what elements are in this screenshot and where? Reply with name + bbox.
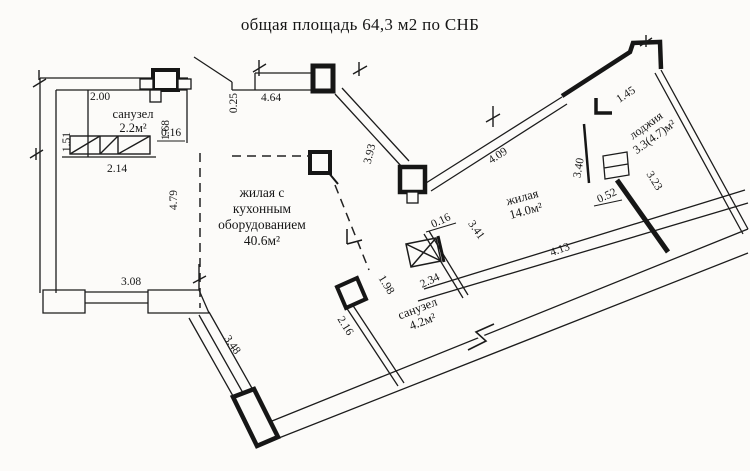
room-name: санузел bbox=[113, 107, 154, 121]
shelf-fixture bbox=[70, 136, 150, 154]
room-name: кухонным bbox=[218, 201, 306, 217]
dim-entry-wall-thickness: 0.25 bbox=[228, 93, 240, 113]
dim-bathroom-top-wall: 0.16 bbox=[161, 127, 181, 139]
dim-top-left-width: 2.00 bbox=[90, 91, 110, 103]
dim-left-upper: 1.51 bbox=[61, 132, 73, 152]
dim-bathroom-top-bottom: 2.14 bbox=[107, 163, 127, 175]
wall-break-symbol bbox=[468, 324, 494, 350]
room-name: оборудованием bbox=[218, 217, 306, 233]
room-label-living-kitchen: жилая с кухонным оборудованием 40.6м² bbox=[218, 185, 306, 249]
dim-bottom-left-wall: 3.08 bbox=[121, 276, 141, 288]
dim-top-wall: 4.64 bbox=[261, 92, 281, 104]
room-area: 2.2м² bbox=[113, 121, 154, 135]
floor-plan-drawing bbox=[0, 0, 750, 471]
plan-title: общая площадь 64,3 м2 по СНБ bbox=[241, 15, 479, 35]
room-area: 40.6м² bbox=[218, 233, 306, 249]
room-name: жилая с bbox=[218, 185, 306, 201]
floor-plan: общая площадь 64,3 м2 по СНБ санузел 2.2… bbox=[0, 0, 750, 471]
dim-left-room-height: 4.79 bbox=[168, 190, 180, 210]
room-label-bathroom-top: санузел 2.2м² bbox=[113, 107, 154, 135]
